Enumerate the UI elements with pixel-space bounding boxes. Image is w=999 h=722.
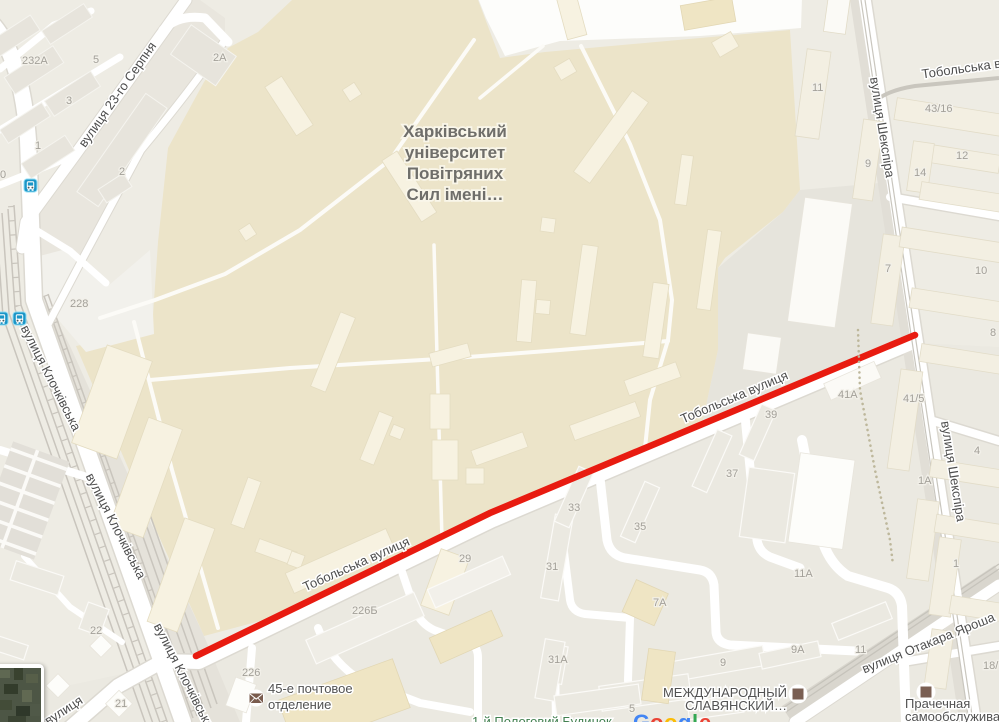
svg-text:41/5: 41/5 — [903, 393, 924, 405]
svg-text:Харківський: Харківський — [403, 122, 507, 141]
svg-text:9: 9 — [865, 158, 871, 170]
svg-text:228: 228 — [70, 298, 88, 310]
svg-text:8: 8 — [990, 327, 996, 339]
svg-text:9А: 9А — [791, 644, 805, 656]
svg-text:1А: 1А — [918, 475, 932, 487]
svg-text:31: 31 — [546, 561, 558, 573]
svg-text:7: 7 — [885, 263, 891, 275]
svg-text:1: 1 — [953, 558, 959, 570]
svg-text:7А: 7А — [653, 597, 667, 609]
svg-text:самообслуживани: самообслуживани — [905, 709, 999, 722]
svg-text:21: 21 — [115, 698, 127, 710]
svg-text:1-й Пологовий Будинок: 1-й Пологовий Будинок — [472, 714, 612, 722]
svg-text:e: e — [699, 710, 711, 722]
svg-text:39: 39 — [765, 409, 777, 421]
svg-text:18/: 18/ — [983, 660, 999, 672]
svg-text:3: 3 — [66, 95, 72, 107]
svg-text:11А: 11А — [794, 568, 813, 580]
svg-text:11: 11 — [855, 644, 866, 656]
svg-text:226: 226 — [242, 667, 260, 679]
svg-text:41А: 41А — [838, 389, 858, 401]
svg-text:g: g — [678, 710, 691, 722]
svg-text:o: o — [664, 710, 677, 722]
svg-text:5: 5 — [93, 54, 99, 66]
svg-text:університет: університет — [405, 143, 505, 162]
svg-text:o: o — [650, 710, 663, 722]
svg-text:226Б: 226Б — [352, 605, 378, 617]
svg-text:Сил імені…: Сил імені… — [407, 185, 504, 204]
svg-text:31А: 31А — [548, 654, 568, 666]
svg-text:1: 1 — [35, 140, 41, 152]
svg-text:2: 2 — [119, 166, 125, 178]
svg-text:12: 12 — [956, 150, 968, 162]
svg-text:0: 0 — [0, 169, 6, 181]
svg-text:45-е почтовое: 45-е почтовое — [268, 681, 353, 696]
svg-text:G: G — [633, 710, 650, 722]
svg-text:10: 10 — [975, 265, 987, 277]
svg-text:9: 9 — [720, 657, 726, 669]
svg-text:l: l — [692, 710, 698, 722]
svg-text:2А: 2А — [213, 52, 227, 64]
svg-text:37: 37 — [726, 468, 738, 480]
svg-text:отделение: отделение — [268, 697, 331, 712]
svg-text:14: 14 — [914, 167, 926, 179]
svg-text:Повітряних: Повітряних — [407, 164, 504, 183]
svg-text:33: 33 — [568, 502, 580, 514]
svg-text:22: 22 — [90, 625, 102, 637]
svg-text:232А: 232А — [22, 55, 48, 67]
svg-text:4: 4 — [974, 445, 980, 457]
svg-text:11: 11 — [812, 82, 823, 94]
svg-text:29: 29 — [459, 553, 471, 565]
svg-text:43/16: 43/16 — [925, 103, 953, 115]
svg-text:35: 35 — [634, 521, 646, 533]
